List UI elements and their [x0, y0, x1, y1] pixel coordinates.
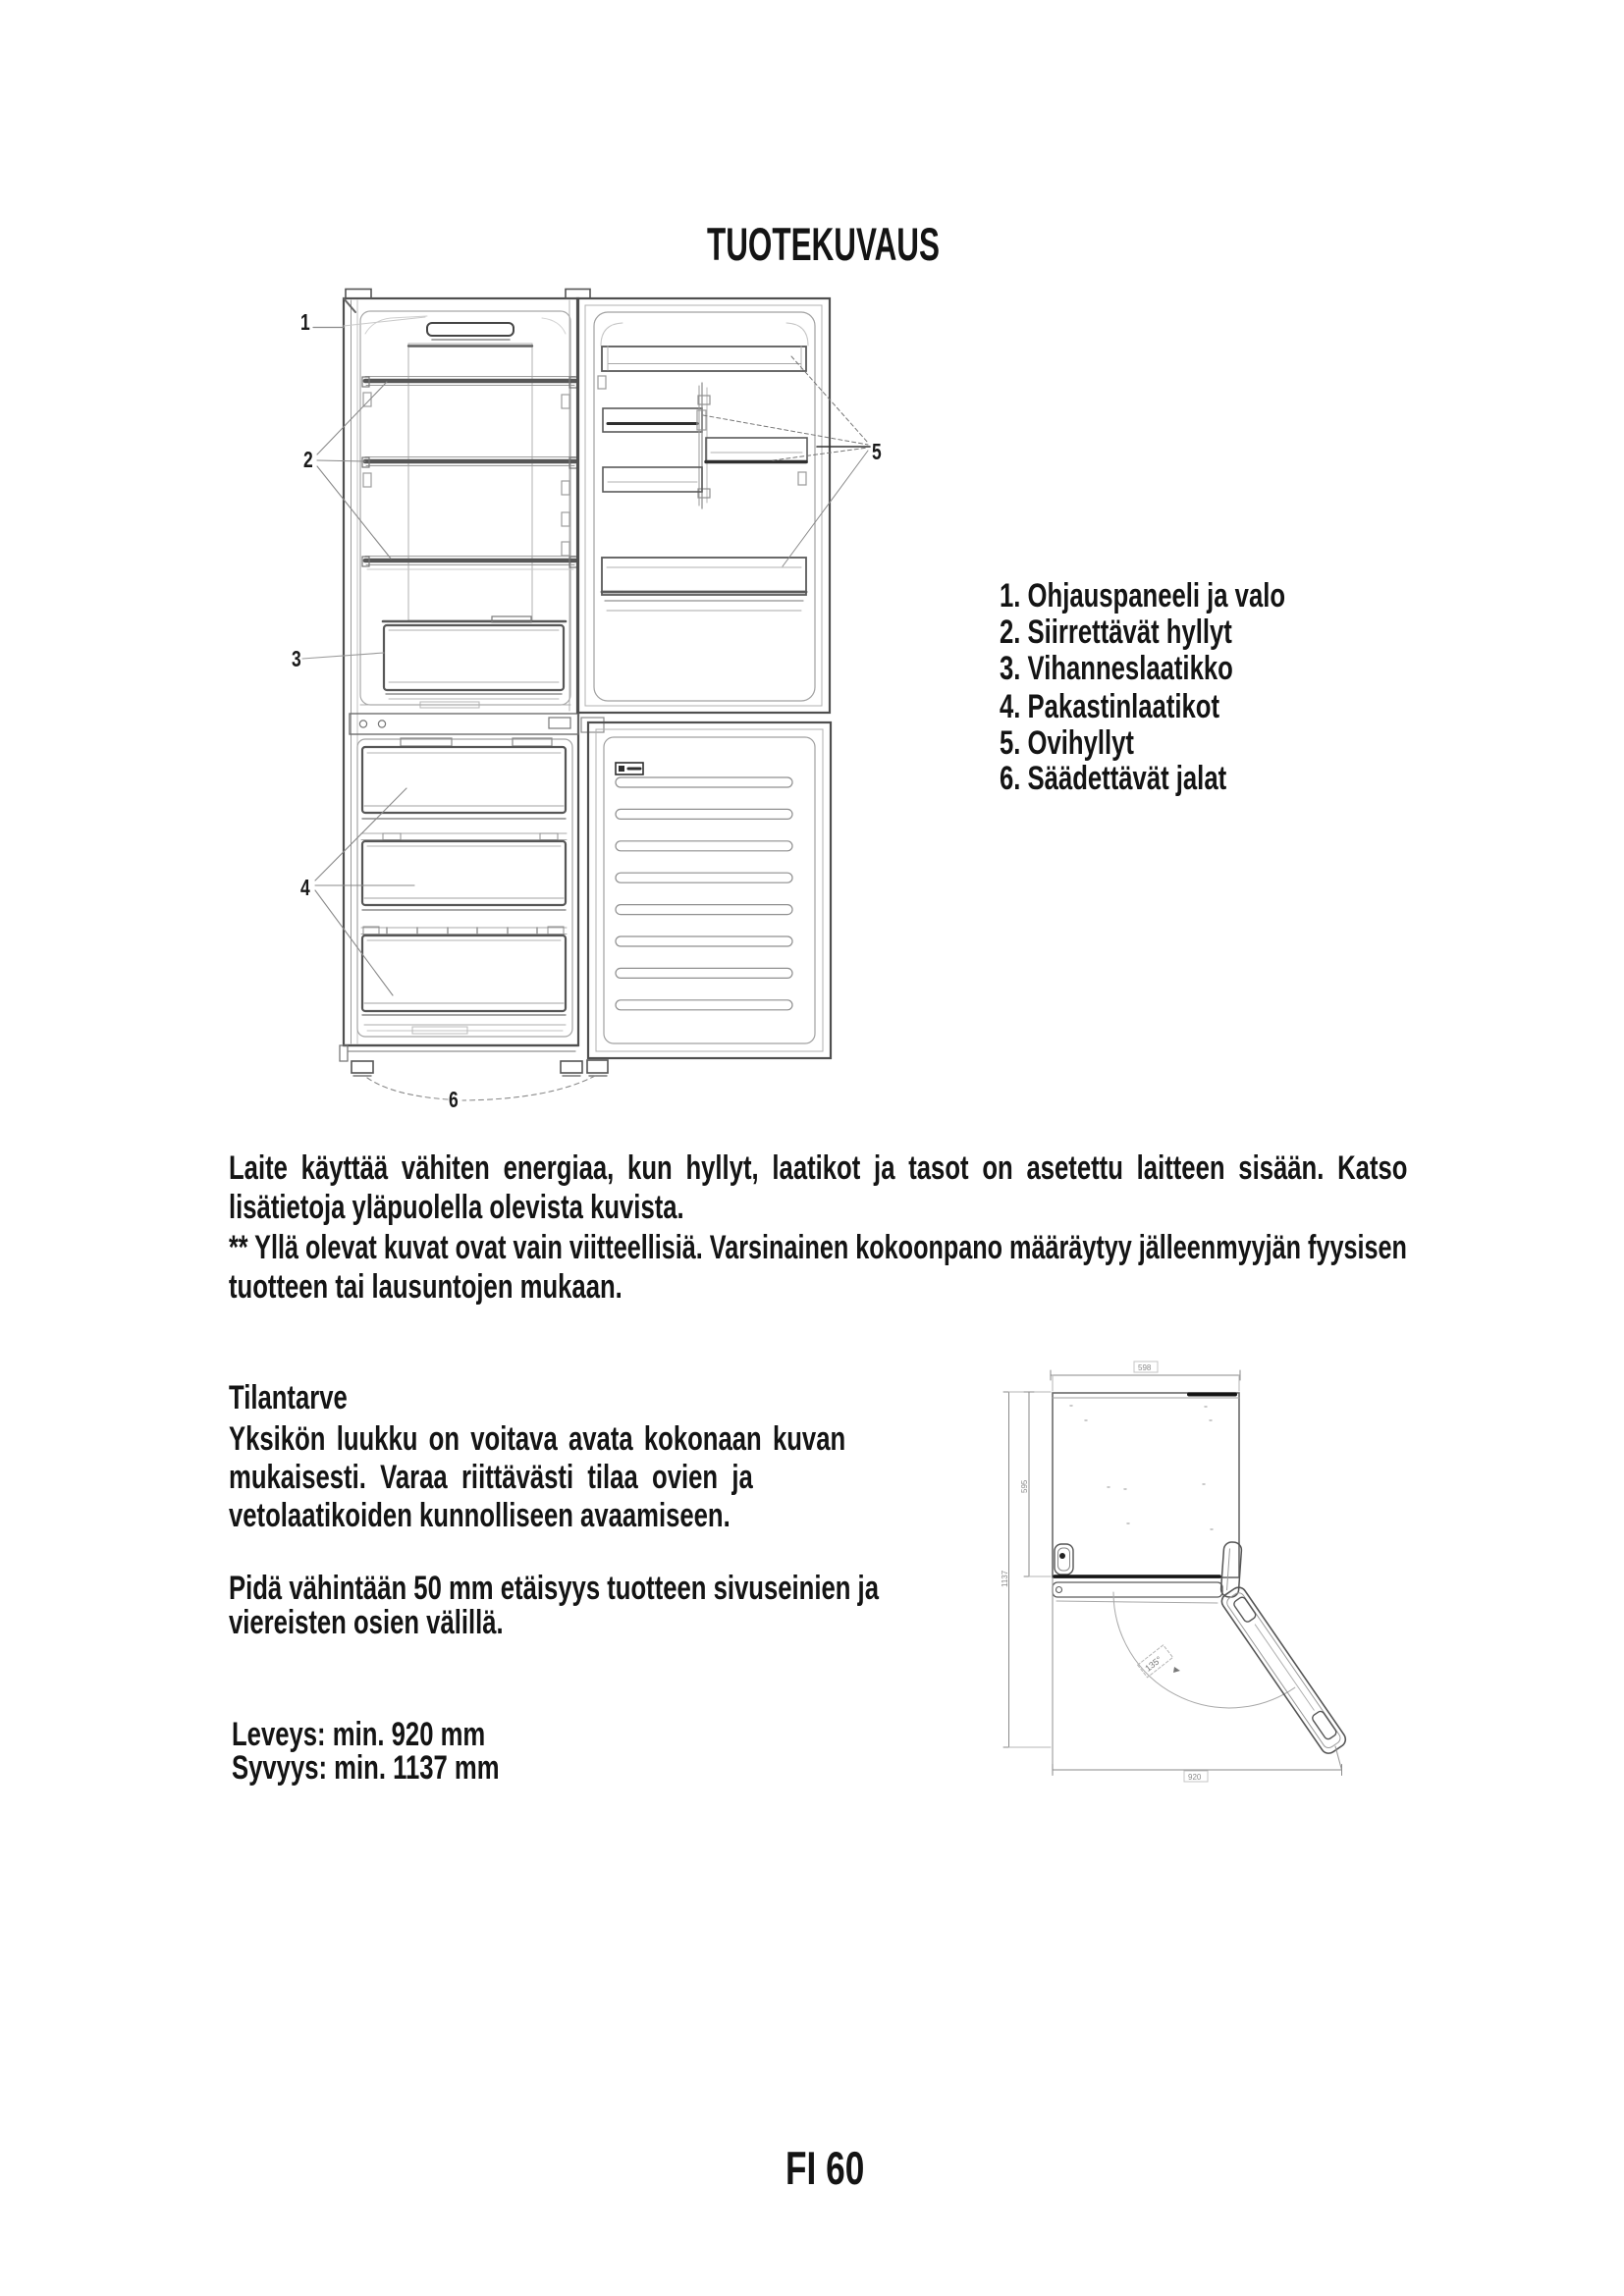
- svg-text:595: 595: [1020, 1479, 1029, 1493]
- svg-text:598: 598: [1138, 1363, 1152, 1372]
- svg-text:920: 920: [1188, 1773, 1202, 1782]
- svg-text:1137: 1137: [1001, 1570, 1009, 1587]
- svg-text:135°: 135°: [1143, 1654, 1164, 1674]
